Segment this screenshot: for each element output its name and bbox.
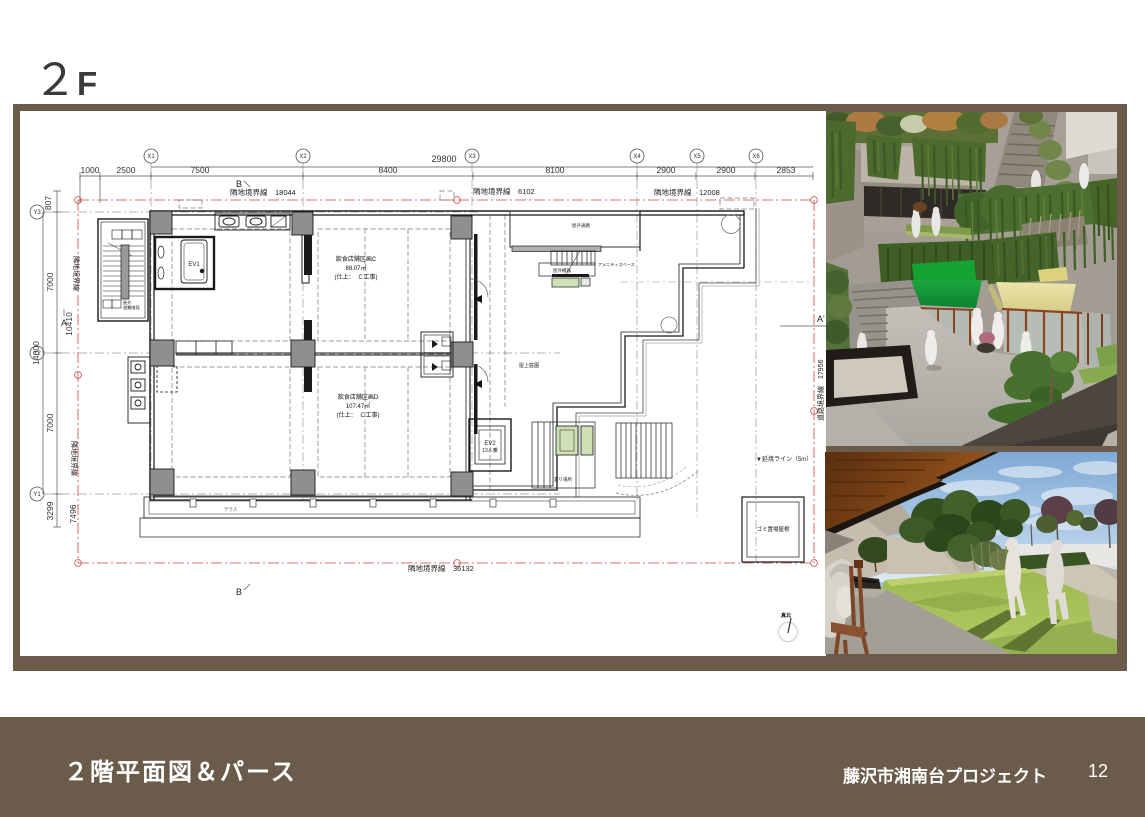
svg-text:88.07㎡: 88.07㎡ [345, 264, 366, 272]
svg-text:避難階段: 避難階段 [123, 304, 141, 311]
svg-text:(仕上： Ｃ工事): (仕上： Ｃ工事) [337, 411, 380, 419]
svg-text:107.47㎡: 107.47㎡ [346, 402, 370, 410]
svg-text:X2: X2 [299, 154, 307, 160]
svg-text:X4: X4 [633, 154, 641, 160]
svg-text:B: B [236, 179, 242, 189]
svg-text:29800: 29800 [431, 154, 456, 164]
svg-text:Y3: Y3 [33, 210, 41, 216]
svg-text:EV2: EV2 [484, 441, 496, 447]
svg-text:14000: 14000 [31, 341, 41, 365]
svg-text:道路境界線 17956: 道路境界線 17956 [816, 359, 825, 421]
svg-text:X5: X5 [693, 154, 701, 160]
svg-text:2900: 2900 [657, 165, 676, 175]
svg-text:置り場所: 置り場所 [554, 476, 572, 483]
svg-text:Y1: Y1 [33, 492, 41, 498]
svg-text:13人乗: 13人乗 [482, 447, 498, 454]
svg-text:X3: X3 [468, 154, 476, 160]
svg-text:7496: 7496 [68, 504, 78, 523]
svg-text:1000: 1000 [81, 165, 100, 175]
svg-text:屋上庭園: 屋上庭園 [519, 362, 539, 369]
svg-text:2900: 2900 [717, 165, 736, 175]
svg-text:7500: 7500 [191, 165, 210, 175]
svg-text:X1: X1 [147, 154, 155, 160]
svg-text:3299: 3299 [45, 501, 55, 520]
svg-text:7000: 7000 [45, 413, 55, 432]
svg-text:B: B [236, 587, 242, 597]
svg-text:EV1: EV1 [188, 262, 200, 268]
svg-text:8400: 8400 [379, 165, 398, 175]
svg-text:隣地境界線 12008: 隣地境界線 12008 [654, 187, 720, 197]
svg-text:A: A [61, 318, 67, 328]
svg-text:2853: 2853 [777, 165, 796, 175]
svg-text:隣地境界線 36132: 隣地境界線 36132 [408, 563, 474, 573]
svg-text:真北: 真北 [781, 612, 791, 619]
svg-text:飲食店舗区画C: 飲食店舗区画C [336, 255, 377, 263]
svg-text:飲食店舗区画D: 飲食店舗区画D [338, 393, 379, 401]
svg-text:ゴミ置場屋根: ゴミ置場屋根 [756, 525, 790, 533]
svg-text:807: 807 [43, 196, 53, 210]
svg-text:屋外通路: 屋外通路 [572, 222, 590, 229]
svg-text:7000: 7000 [45, 272, 55, 291]
svg-text:隣地境界線 6102: 隣地境界線 6102 [473, 186, 535, 196]
svg-text:2500: 2500 [117, 165, 136, 175]
svg-text:隣地境界線: 隣地境界線 [72, 256, 81, 291]
svg-text:A': A' [817, 314, 825, 324]
svg-text:(仕上： Ｃ工事): (仕上： Ｃ工事) [335, 273, 378, 281]
svg-text:▼延焼ライン（5m）: ▼延焼ライン（5m） [756, 455, 812, 463]
svg-text:屋外機器: 屋外機器 [553, 267, 571, 274]
svg-text:8100: 8100 [546, 165, 565, 175]
svg-text:隣地境界線: 隣地境界線 [70, 441, 79, 476]
svg-text:X6: X6 [752, 154, 760, 160]
